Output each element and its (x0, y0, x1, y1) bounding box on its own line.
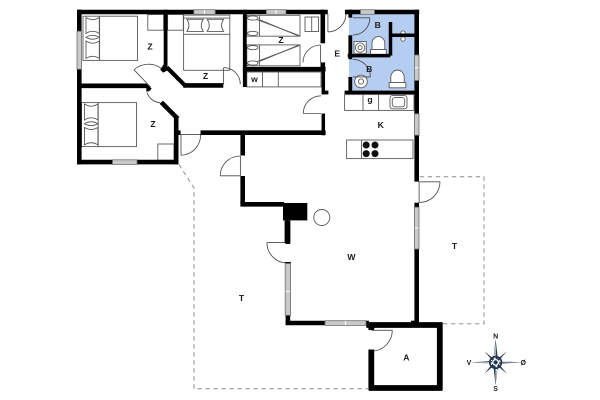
svg-text:Z: Z (147, 41, 152, 51)
svg-text:A: A (403, 352, 409, 362)
svg-text:E: E (334, 49, 340, 59)
svg-text:T: T (239, 293, 245, 303)
svg-text:K: K (378, 120, 385, 130)
svg-text:B: B (366, 64, 372, 74)
svg-text:N: N (493, 334, 498, 341)
svg-text:Z: Z (203, 71, 208, 81)
svg-text:W: W (347, 252, 356, 262)
svg-text:g: g (367, 94, 372, 104)
svg-text:B: B (375, 20, 381, 30)
svg-text:Ø: Ø (520, 360, 526, 367)
svg-text:T: T (452, 241, 458, 251)
svg-text:w: w (250, 74, 258, 84)
svg-text:S: S (493, 386, 498, 393)
svg-text:Z: Z (150, 119, 155, 129)
svg-text:V: V (467, 360, 472, 367)
svg-text:Z: Z (278, 35, 283, 45)
